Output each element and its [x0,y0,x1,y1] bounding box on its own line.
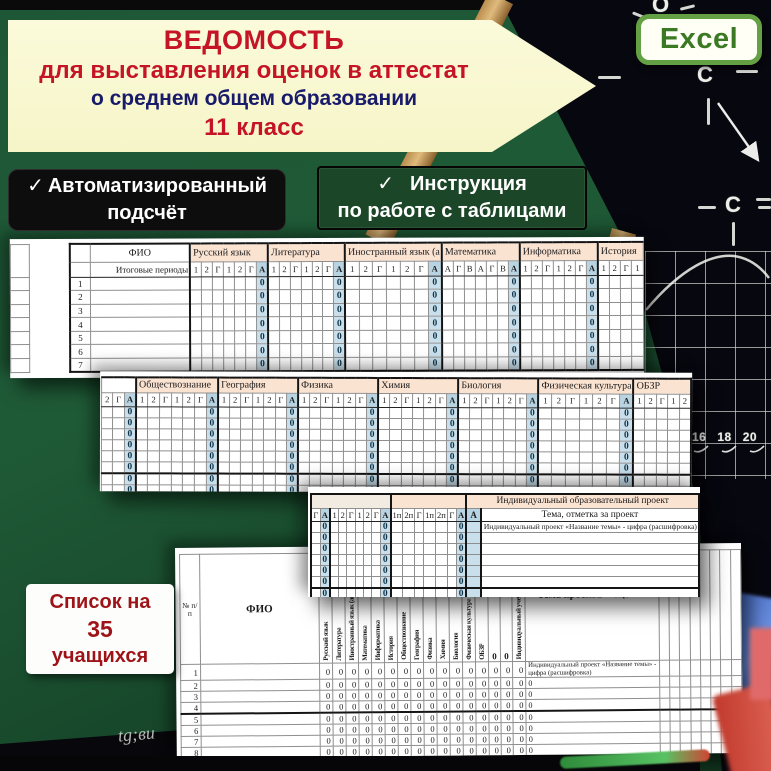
period-col-header: 1 [268,261,279,276]
grade-cell [330,521,339,532]
grade-cell [435,565,447,576]
grade-cell [268,317,279,331]
grade-cell [301,358,312,372]
grade-cell [373,317,387,331]
vertical-subject-label: Обществознание [399,612,409,660]
grade-cell [424,554,436,565]
grade-cell [606,430,620,441]
grade-cell [553,357,564,371]
avg-cell: 0 [527,462,539,474]
grade-cell [345,303,359,317]
grade-cell [401,440,412,451]
avg-cell: 0 [257,317,268,331]
grade-cell [656,430,667,441]
spacer-col [30,290,70,304]
grade-cell [566,429,580,440]
grade-cell [171,439,183,450]
empty-cell [711,660,721,676]
grade-cell [531,302,542,316]
badge-student-count: Список на 35 учащихся [26,584,174,674]
grade-cell [224,358,235,372]
avg-cell: 0 [334,357,345,371]
grade-cell [344,451,355,462]
empty-cell [690,676,700,687]
period-col-header: А [447,393,459,407]
grade-cell [481,429,492,440]
grade-cell [330,588,339,598]
grade-cell [515,451,526,462]
grade-cell [475,316,486,330]
grade-cell [415,565,424,576]
grade-cell [481,474,492,486]
grade-cell [311,576,320,588]
grade-cell [435,407,446,418]
grade-cell [323,303,334,317]
grade-cell: 0 [359,690,372,701]
avg-cell: 0 [527,440,539,451]
period-col-header: Г [453,261,464,276]
avg-col-header: А [466,508,480,521]
grade-cell: 0 [398,712,411,724]
grade-cell [213,317,224,331]
avg-cell: 0 [334,290,345,304]
grade-cell [212,276,223,290]
grade-cell [412,462,423,474]
grade-cell: 0 [501,734,513,745]
grade-cell [403,554,415,565]
grade-cell [645,441,656,452]
period-col-header: В [464,260,475,275]
grade-cell [442,357,453,371]
grade-cell [464,303,475,317]
grade-cell [621,316,632,330]
grade-cell: 0 [463,678,476,689]
grade-cell [311,588,320,598]
grade-cell [252,407,263,418]
grade-cell [298,407,309,418]
grade-cell [453,357,464,371]
grade-cell: 0 [320,713,333,725]
grade-cell [309,429,320,440]
vertical-subject-label: Физическая культура [463,598,474,659]
grade-cell [481,462,492,474]
grade-cell [476,343,487,357]
grade-cell: 0 [385,724,398,735]
grade-cell [475,303,486,317]
avg-cell: 0 [366,462,378,474]
grade-cell: 0 [411,700,424,712]
grade-cell [148,417,160,428]
period-col-header: 1 [252,393,263,407]
grade-cell [542,357,553,371]
grade-cell [359,317,373,331]
grade-cell [504,462,515,474]
period-col-header: Г [321,393,332,407]
grade-cell [301,303,312,317]
grade-cell [275,429,286,440]
avg-cell: 0 [334,317,345,331]
grade-cell [218,429,229,440]
grade-cell [113,406,124,417]
grade-cell [606,408,620,419]
grade-cell: 0 [398,723,411,734]
subject-header: История [598,242,644,260]
avg-cell: 0 [257,331,268,345]
grade-cell [212,290,223,304]
grade-cell [339,565,347,576]
grade-cell [229,429,240,440]
avg-cell: 0 [286,418,298,429]
grade-cell [566,418,580,429]
grade-cell [263,485,274,493]
empty-cell [690,660,700,676]
period-col-header: 2 [310,393,321,407]
grade-cell [235,290,246,304]
grade-cell: 0 [424,712,437,724]
grade-cell [606,441,620,452]
grade-cell [202,358,213,372]
grade-cell [268,290,279,304]
grade-cell [435,554,447,565]
grade-cell [364,554,372,565]
grade-cell: 0 [359,724,372,735]
avg-cell: 0 [257,276,268,290]
grade-cell [552,474,566,486]
grade-cell [412,440,423,451]
grade-cell [355,440,366,451]
period-col-header: 2 [148,392,160,406]
grade-cell [102,406,113,417]
grade-cell [332,462,343,474]
empty-cell [669,660,679,676]
grade-cell: 0 [320,724,333,735]
grade-cell [387,317,401,331]
grade-cell [593,441,607,452]
grade-cell [159,439,171,450]
grade-table: ОбществознаниеГеографияФизикаХимияБиолог… [101,376,692,493]
grade-cell [378,407,389,418]
grade-cell [415,576,424,588]
grade-cell: 0 [449,662,462,678]
vertical-subject-label: Физика [425,638,435,660]
grade-cell: 0 [411,712,424,724]
grade-cell [387,357,401,371]
avg-cell: 0 [587,275,598,289]
avg-cell: 0 [527,429,539,440]
avg-cell: 0 [286,440,298,451]
grade-cell [515,440,526,451]
grade-cell [275,462,286,474]
grade-cell [241,429,252,440]
grade-cell [372,532,381,543]
grade-cell [415,543,424,554]
fio-header: ФИО [90,243,190,261]
period-col-header: В [497,260,508,275]
avg-cell: 0 [509,316,520,330]
avg-cell: 0 [257,303,268,317]
avg-cell: 0 [367,429,379,440]
grade-cell [565,451,579,462]
avg-cell: 0 [509,275,520,289]
project-theme-cell [481,576,699,588]
subject-header: Русский язык [190,243,268,261]
vertical-subject-label: География [412,630,422,660]
grade-cell [403,532,415,543]
grade-cell [364,543,372,554]
grade-cell: 0 [372,690,385,701]
grade-cell: 0 [424,734,437,745]
avg-cell: 0 [620,441,634,452]
grade-cell [309,440,320,451]
margin-col [10,244,30,277]
grade-cell [593,419,607,430]
grade-cell [344,473,355,485]
grade-cell: 0 [333,735,346,746]
grade-cell [481,418,492,429]
grade-cell [309,473,320,485]
grade-cell [668,419,679,430]
grade-cell [148,428,160,439]
promo-image: 16 18 20 O C C tg;ви ВЕДОМОСТЬ для выста… [0,0,771,771]
grade-cell: 0 [359,679,372,690]
avg-cell: 0 [381,576,391,588]
grade-cell [148,461,160,473]
grade-cell [435,418,446,429]
subject-header: Математика [442,242,520,260]
grade-cell: 0 [385,712,398,724]
grade-cell [330,543,339,554]
grade-cell [321,407,332,418]
grade-cell [442,289,453,303]
grade-cell [190,317,201,331]
excel-logo: Excel [636,14,762,65]
grade-cell [241,418,252,429]
grade-cell [645,419,656,430]
grade-cell [224,290,235,304]
grade-cell [252,485,263,493]
grade-cell [497,275,508,289]
chalk-number: 20 [743,430,757,444]
grade-cell [372,588,381,598]
grade-cell [609,302,620,316]
grade-cell: 0 [372,724,385,735]
grade-cell [575,275,586,289]
grade-cell [171,450,183,461]
grade-cell [564,302,575,316]
grade-cell [183,450,195,461]
project-theme-cell [481,543,699,554]
grade-cell [323,358,334,372]
grade-cell [412,451,423,462]
grade-cell [552,462,566,474]
period-col-header: 1 [668,394,679,408]
grade-cell [415,521,424,532]
grade-cell [364,588,372,598]
grade-cell: 0 [384,663,397,679]
spacer-col [30,331,70,345]
grade-cell: 0 [346,712,359,724]
grade-cell [390,451,401,462]
grade-cell [447,565,456,576]
grade-cell [668,408,679,419]
avg-cell: 0 [620,419,634,430]
grade-cell [246,303,257,317]
grade-cell: 0 [476,734,489,745]
grade-cell [470,429,481,440]
grade-cell [229,485,240,493]
vertical-subject-label: Биология [451,632,461,659]
grade-cell [268,303,279,317]
avg-cell: 0 [381,521,391,532]
grade-cell [538,407,552,418]
grade-cell: 0 [501,678,513,689]
grade-cell [102,417,113,428]
grade-cell: 0 [501,711,513,723]
period-col-header: 2 [609,260,620,275]
period-col-header: 1 [345,261,359,276]
avg-cell: 0 [381,543,391,554]
grade-cell [598,329,609,343]
grade-cell [359,330,373,344]
grade-cell [504,429,515,440]
project-theme-cell: Индивидуальный проект «Название темы» - … [526,660,660,677]
grade-cell [633,441,644,452]
grade-cell [190,344,201,358]
avg-cell: 0 [286,473,298,485]
avg-cell: 0 [381,532,391,543]
avg-cell: 0 [334,276,345,290]
avg-cell: 0 [527,474,539,486]
grade-cell [679,430,691,441]
grade-cell [487,330,498,344]
grade-cell: 0 [450,711,463,723]
vertical-subject-label: Литература [334,627,344,660]
grade-cell [310,418,321,429]
grade-cell [235,358,246,372]
grade-cell: 0 [489,711,501,723]
period-col-header: 1 [171,392,183,406]
grade-cell [412,429,423,440]
grade-cell [609,329,620,343]
avg-cell: 0 [456,543,466,554]
grade-cell: 0 [333,679,346,690]
grade-cell [241,440,252,451]
grade-cell [264,407,275,418]
grade-cell [492,474,503,486]
grade-cell [553,302,564,316]
period-col-header: 1 [298,393,309,407]
grade-cell: 0 [424,745,437,756]
grade-cell [414,330,428,344]
avg-cell: 0 [206,429,218,440]
grade-cell [323,344,334,358]
grade-cell [542,343,553,357]
grade-cell [564,275,575,289]
grade-cell [579,418,593,429]
empty-cell [660,732,670,743]
grade-cell [113,461,124,473]
grade-cell [579,407,593,418]
chalk-bond [598,76,621,79]
period-col-header: Г [620,260,631,275]
grade-cell [229,473,240,485]
grade-cell [531,343,542,357]
fio-cell [90,317,190,331]
grade-cell [542,330,553,344]
grade-cell [264,440,275,451]
grade-cell [364,532,372,543]
period-col-header: Г [415,508,424,521]
empty-cell [680,721,690,732]
grade-cell [290,344,301,358]
grade-cell [606,452,620,463]
grade-cell [218,418,229,429]
grade-cell [538,418,552,429]
grade-cell [355,521,363,532]
grade-cell: 0 [476,711,489,723]
grade-cell [359,344,373,358]
grade-cell [202,344,213,358]
grade-cell [136,428,148,439]
grade-cell [520,357,531,371]
grade-cell: 0 [501,700,513,712]
grade-cell [442,316,453,330]
fio-cell [200,663,319,680]
grade-cell: 0 [333,724,346,735]
grade-cell [447,576,456,588]
grade-cell [136,473,148,485]
chalk-arrow [713,98,771,176]
grade-cell [311,554,320,565]
grade-cell: 0 [332,663,345,679]
grade-cell [609,357,620,371]
grade-cell [229,407,240,418]
grade-cell [332,429,343,440]
grade-cell: 0 [463,734,476,745]
period-col-header: 2 [359,261,373,276]
grade-cell [113,439,124,450]
fio-header: ФИО [199,553,319,664]
grade-cell [538,429,552,440]
row-number: 1 [181,664,201,680]
subject-header: ОБЗР [634,379,692,394]
period-col-header: 1 [218,393,229,407]
grade-cell: 0 [346,679,359,690]
grade-cell [201,331,212,345]
grade-cell [633,474,644,486]
period-col-header: 1 [332,393,343,407]
grade-cell [290,317,301,331]
grade-cell [344,462,355,474]
grade-cell: 0 [346,701,359,713]
grade-cell [576,316,587,330]
avg-cell: 0 [509,330,520,344]
grade-cell [298,429,309,440]
grade-cell [275,473,286,485]
grade-cell [246,331,257,345]
period-col-header: 1 [493,393,504,407]
grade-cell [458,418,469,429]
grade-cell [447,521,456,532]
avg-cell: 0 [509,343,520,357]
empty-cell [659,676,669,687]
grade-cell [347,532,356,543]
avg-cell: 0 [320,543,330,554]
grade-cell [148,473,160,485]
grade-cell: 0 [463,723,476,734]
grade-cell [290,358,301,372]
grade-cell: 0 [320,679,333,690]
